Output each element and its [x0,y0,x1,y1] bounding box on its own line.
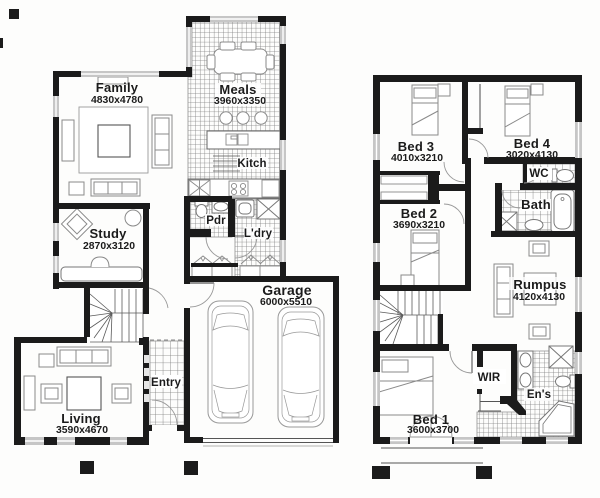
svg-text:4830x4780: 4830x4780 [91,95,143,106]
svg-text:3960x3350: 3960x3350 [214,96,266,107]
svg-text:Kitch: Kitch [237,158,266,170]
svg-text:Family: Family [96,80,139,95]
svg-text:Entry: Entry [151,377,181,389]
svg-text:Pdr: Pdr [206,215,226,227]
svg-text:WC: WC [529,168,548,180]
svg-text:En's: En's [527,389,551,401]
svg-text:Garage: Garage [262,282,311,298]
svg-text:3020x4130: 3020x4130 [506,150,558,161]
svg-text:Living: Living [61,411,100,426]
svg-text:Meals: Meals [219,82,256,97]
svg-text:Bath: Bath [521,197,551,212]
svg-text:4010x3210: 4010x3210 [391,153,443,164]
svg-text:6000x5510: 6000x5510 [260,297,312,308]
svg-text:L'dry: L'dry [244,228,273,240]
svg-text:2870x3120: 2870x3120 [83,241,135,252]
svg-text:Rumpus: Rumpus [513,277,566,292]
svg-text:Bed 3: Bed 3 [398,139,434,154]
svg-text:4120x4130: 4120x4130 [513,292,565,303]
svg-text:3600x3700: 3600x3700 [407,425,459,436]
svg-text:3690x3210: 3690x3210 [393,220,445,231]
svg-text:3590x4670: 3590x4670 [56,425,108,436]
svg-text:WIR: WIR [478,372,501,384]
svg-text:Bed 4: Bed 4 [514,136,551,151]
svg-text:Study: Study [89,226,127,241]
svg-text:Bed 2: Bed 2 [401,206,437,221]
